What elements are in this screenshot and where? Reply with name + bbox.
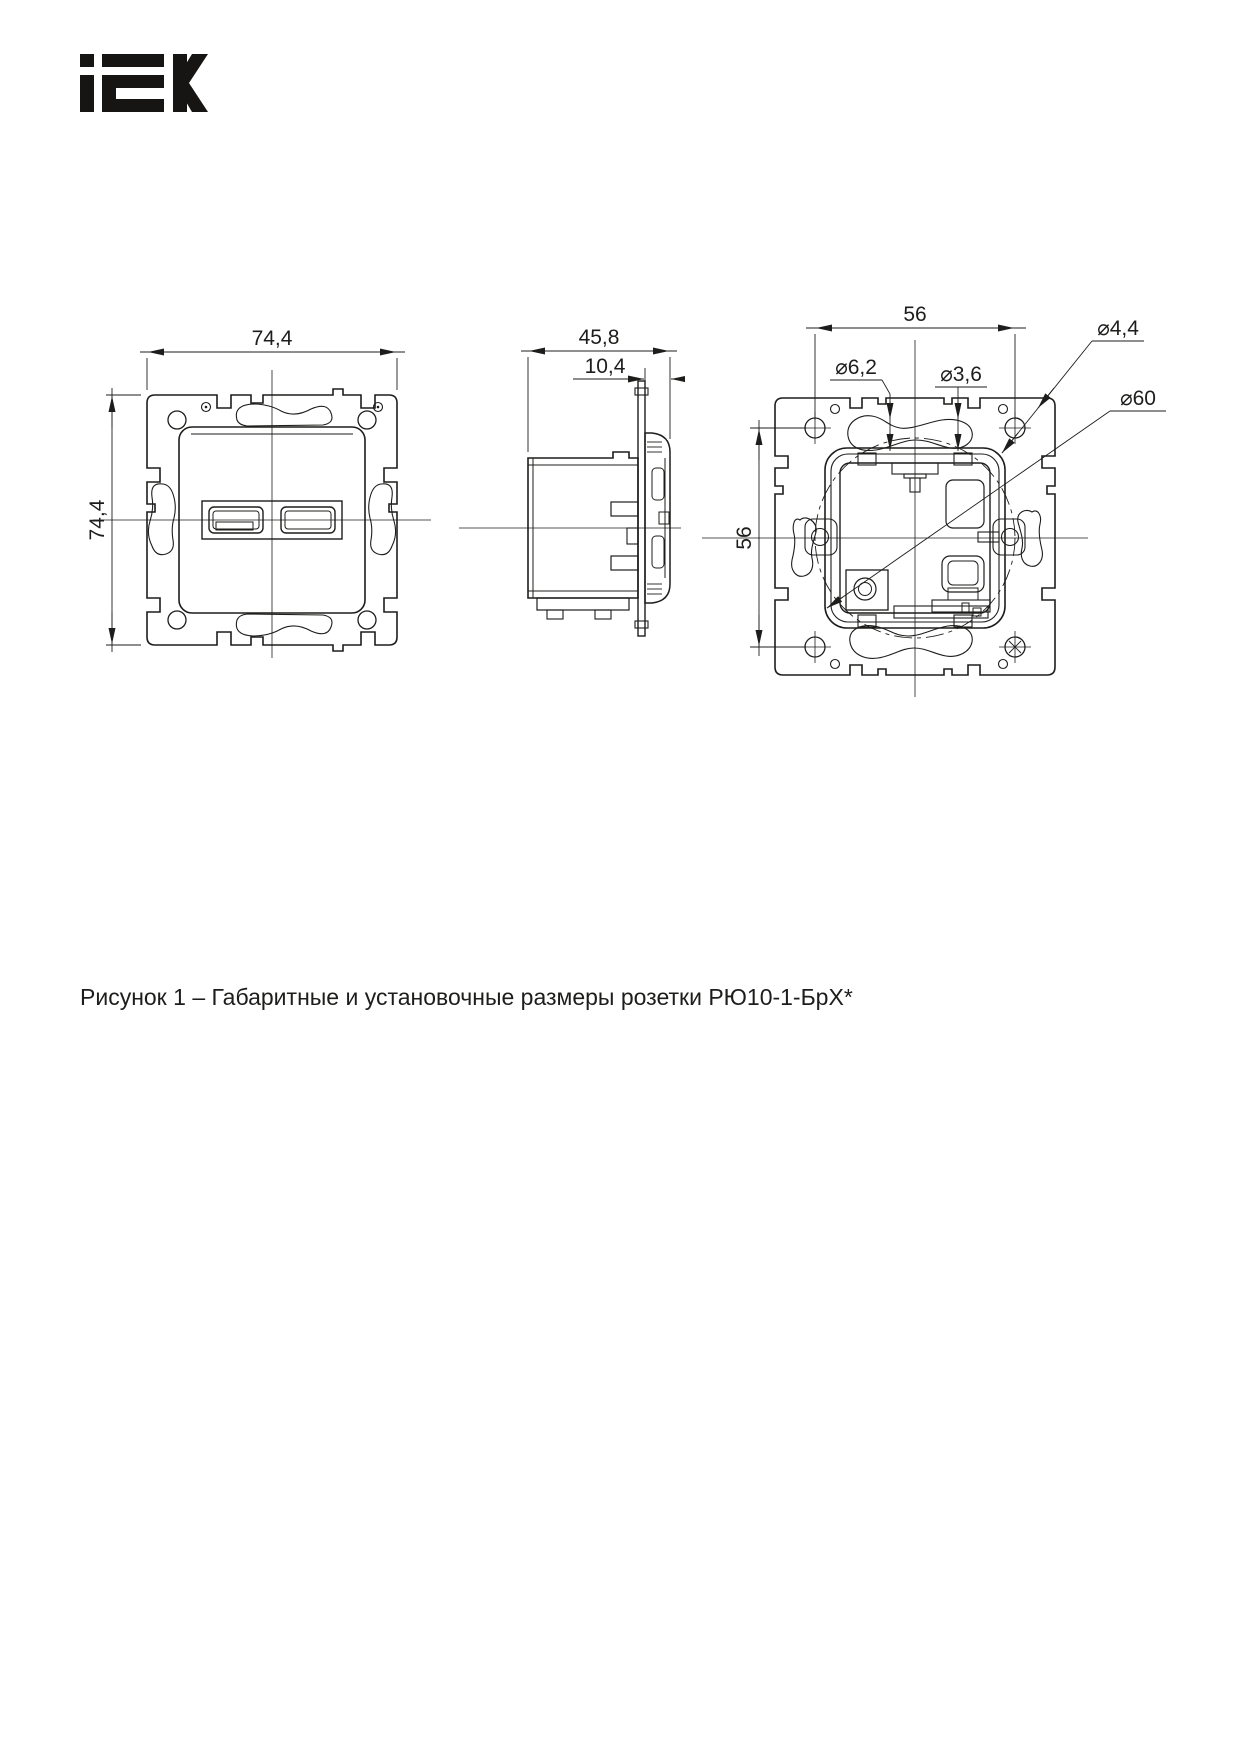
side-dimensions: 45,8 10,4: [521, 326, 685, 452]
dim-rear-corner-hole: ⌀4,4: [1097, 317, 1139, 340]
rear-centerlines: [702, 340, 1088, 697]
front-bottom-slot: [236, 614, 332, 636]
rear-view: 56 56 ⌀6,2 ⌀3,6 ⌀4,4 ⌀60: [680, 270, 1244, 700]
rear-dimensions: 56 56 ⌀6,2 ⌀3,6 ⌀4,4 ⌀60: [733, 303, 1166, 656]
side-face-plate: [645, 433, 670, 603]
dim-rear-circle: ⌀60: [1120, 387, 1156, 410]
dim-rear-slot: ⌀6,2: [835, 356, 877, 379]
front-top-slot: [236, 404, 332, 426]
dim-rear-hspacing: 56: [903, 303, 926, 326]
front-dimensions: 74,4 74,4: [86, 327, 405, 652]
dim-front-width: 74,4: [252, 327, 293, 350]
front-right-slot: [369, 484, 396, 555]
side-view: 45,8 10,4: [455, 318, 685, 658]
front-view: 74,4 74,4: [85, 320, 435, 660]
iek-logo: [80, 54, 208, 112]
iek-logo-glyphs: [80, 54, 208, 112]
dim-side-front: 10,4: [585, 355, 626, 378]
dim-rear-hole: ⌀3,6: [940, 363, 982, 386]
dim-rear-vspacing: 56: [733, 526, 756, 549]
front-centerlines: [93, 370, 431, 658]
figure-caption: Рисунок 1 – Габаритные и установочные ра…: [80, 984, 853, 1011]
side-body: [528, 452, 638, 619]
dim-side-depth: 45,8: [579, 326, 620, 349]
document-page: 74,4 74,4: [0, 0, 1244, 1748]
dim-front-height: 74,4: [86, 499, 109, 540]
front-left-slot: [148, 484, 175, 555]
